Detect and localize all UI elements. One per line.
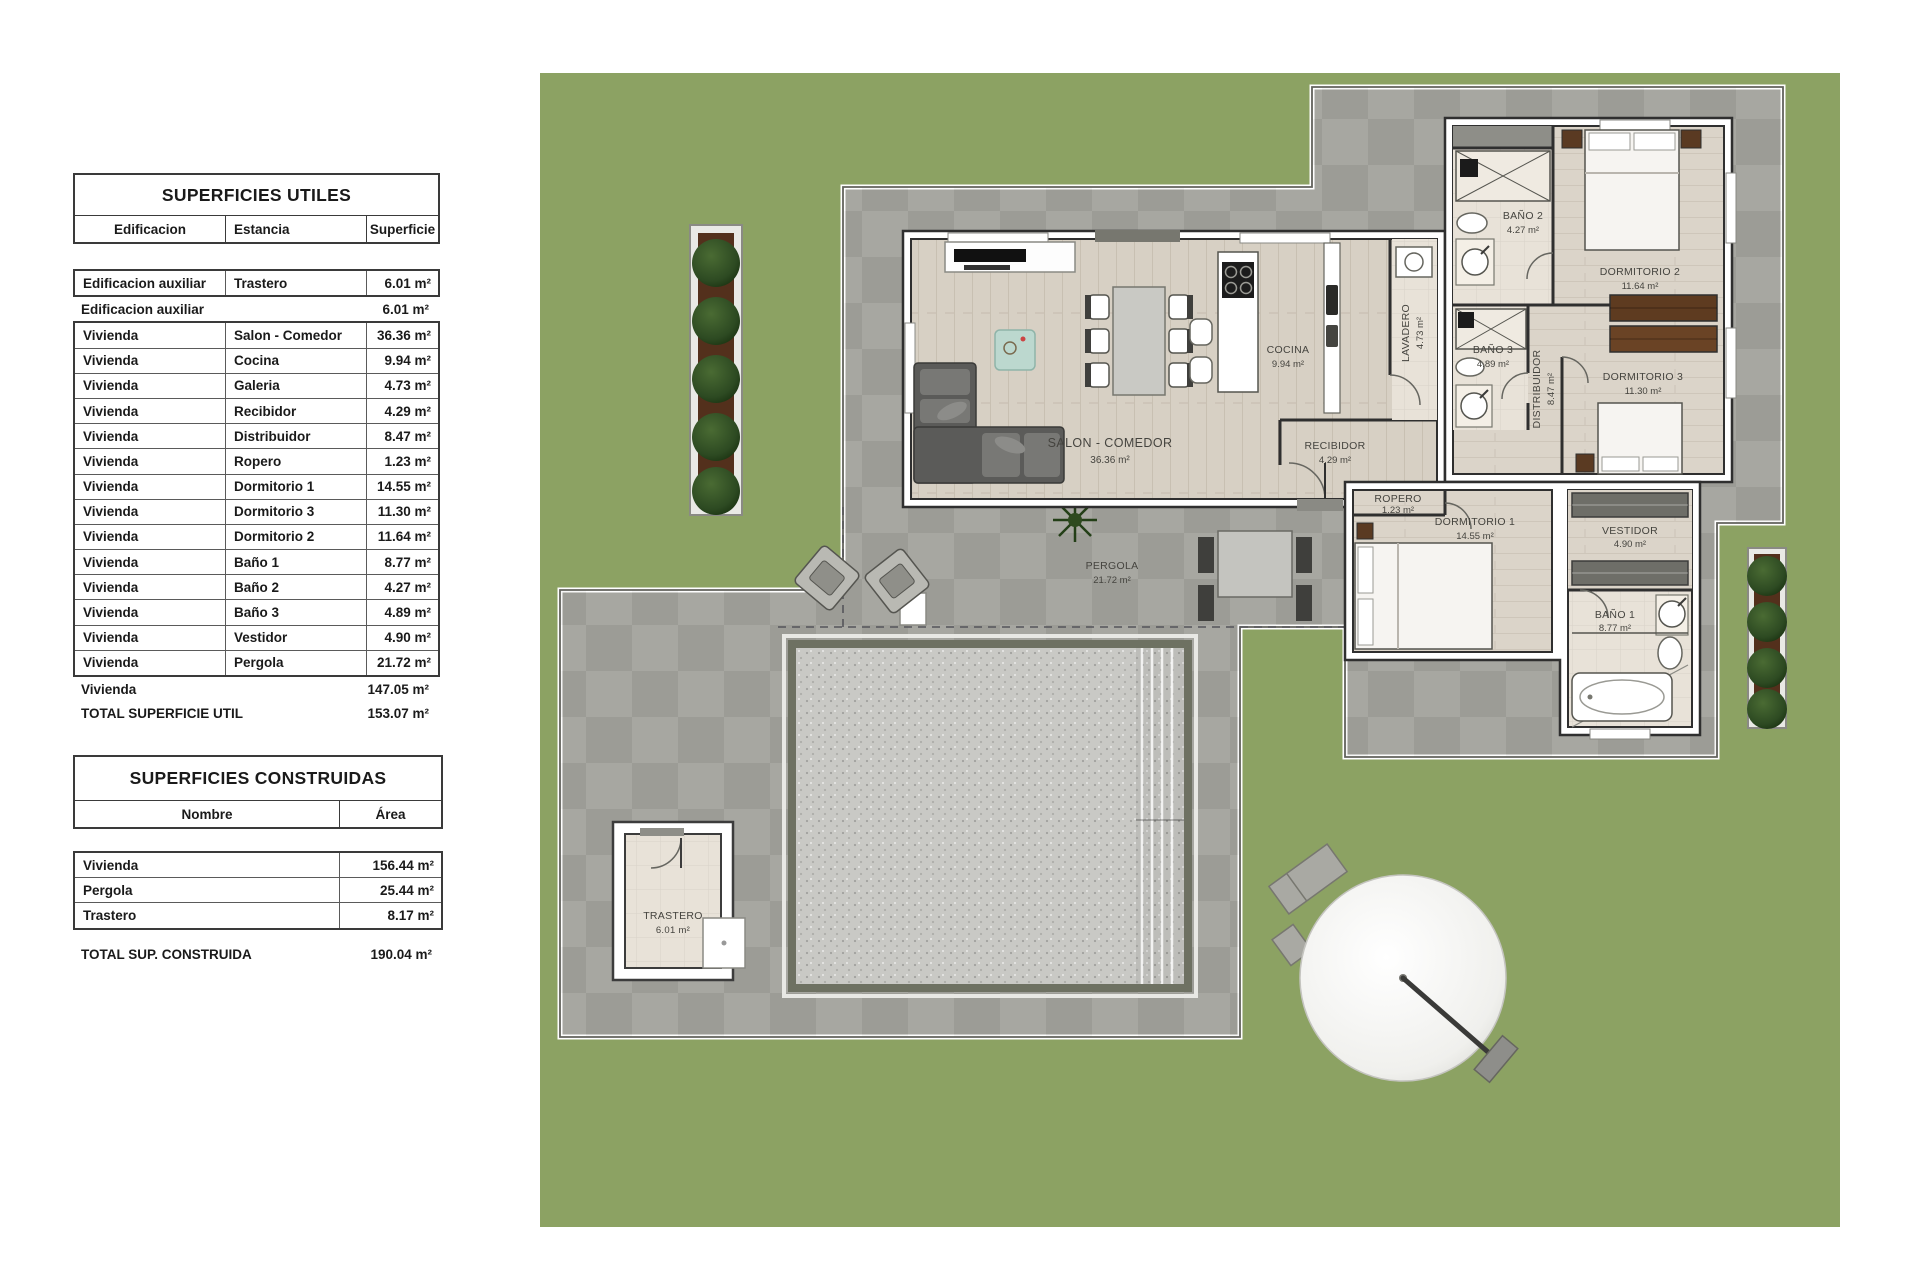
cell-superficie: 6.01 m²: [364, 297, 436, 321]
cell-nombre: Trastero: [75, 903, 339, 927]
col-header-estancia: Estancia: [225, 216, 366, 242]
table-subtotal-row: Edificacion auxiliar 6.01 m²: [73, 297, 440, 321]
table-row: ViviendaBaño 24.27 m²: [75, 574, 438, 599]
total-value: 190.04 m²: [337, 943, 439, 967]
dining-table: [1085, 287, 1193, 395]
window: [1590, 729, 1650, 739]
svg-text:BAÑO 1: BAÑO 1: [1595, 608, 1635, 621]
table-row: ViviendaDormitorio 311.30 m²: [75, 499, 438, 524]
cell-estancia: Distribuidor: [225, 424, 366, 448]
svg-text:TRASTERO: TRASTERO: [643, 910, 703, 922]
svg-text:4.90 m²: 4.90 m²: [1614, 539, 1646, 550]
shower-head-icon: [1460, 159, 1478, 177]
col-header-area: Área: [339, 801, 441, 827]
col-header-superficie: Superficie: [366, 216, 438, 242]
superficies-construidas-table: SUPERFICIES CONSTRUIDAS Nombre Área Vivi…: [73, 755, 443, 967]
kitchen-counter: [1324, 243, 1340, 413]
superficies-utiles-table: SUPERFICIES UTILES Edificacion Estancia …: [73, 173, 440, 725]
cell-edificacion: Vivienda: [75, 525, 225, 549]
cell-estancia: Trastero: [225, 271, 366, 295]
cell-edificacion: Vivienda: [75, 424, 225, 448]
cell-estancia: Baño 3: [225, 600, 366, 624]
nightstand: [1562, 130, 1582, 148]
cell-estancia: Baño 2: [225, 575, 366, 599]
cell-superficie: 36.36 m²: [366, 323, 438, 347]
cell-estancia: Pergola: [225, 651, 366, 675]
cell-edificacion: Vivienda: [75, 323, 225, 347]
svg-text:DORMITORIO 3: DORMITORIO 3: [1603, 371, 1683, 383]
planter-left: [690, 225, 742, 515]
cell-estancia: Vestidor: [225, 626, 366, 650]
cell-edificacion: Vivienda: [75, 651, 225, 675]
cell-estancia: Dormitorio 1: [225, 475, 366, 499]
table-total-row: TOTAL SUP. CONSTRUIDA 190.04 m²: [73, 943, 443, 967]
svg-text:LAVADERO: LAVADERO: [1400, 304, 1412, 362]
table-row: Pergola25.44 m²: [75, 877, 441, 902]
cell-edificacion: Vivienda: [75, 349, 225, 373]
nightstand: [1576, 454, 1594, 472]
table-row: ViviendaBaño 18.77 m²: [75, 549, 438, 574]
tree-icon: [1747, 689, 1787, 729]
nightstand: [1357, 523, 1373, 539]
tree-icon: [692, 355, 740, 403]
cell-superficie: 21.72 m²: [366, 651, 438, 675]
cell-edificacion: Vivienda: [75, 475, 225, 499]
tree-icon: [692, 413, 740, 461]
table-row: ViviendaRecibidor4.29 m²: [75, 398, 438, 423]
tree-icon: [692, 297, 740, 345]
cell-superficie: 11.30 m²: [366, 500, 438, 524]
utiles-title: SUPERFICIES UTILES: [75, 175, 438, 216]
cell-superficie: 6.01 m²: [366, 271, 438, 295]
tv-unit: [945, 242, 1075, 272]
entry-mat: [1297, 499, 1343, 511]
trastero-building: TRASTERO 6.01 m²: [613, 822, 745, 980]
cell-edificacion: Vivienda: [75, 626, 225, 650]
total-label: TOTAL SUPERFICIE UTIL: [73, 701, 364, 725]
window: [1240, 233, 1330, 243]
cell-edificacion: Vivienda: [75, 399, 225, 423]
washbasin-icon: [1659, 601, 1685, 627]
cell-edificacion: Vivienda: [75, 600, 225, 624]
svg-text:36.36 m²: 36.36 m²: [1090, 455, 1130, 466]
svg-text:DISTRIBUIDOR: DISTRIBUIDOR: [1531, 349, 1543, 428]
washbasin-icon: [1462, 249, 1488, 275]
cell-estancia: Salon - Comedor: [225, 323, 366, 347]
svg-text:ROPERO: ROPERO: [1374, 493, 1421, 505]
nightstand: [1681, 130, 1701, 148]
site-plan: TRASTERO 6.01 m²: [540, 73, 1840, 1227]
svg-text:21.72 m²: 21.72 m²: [1093, 575, 1131, 586]
svg-text:SALON - COMEDOR: SALON - COMEDOR: [1048, 436, 1173, 450]
window: [1726, 173, 1736, 243]
window: [1726, 328, 1736, 398]
cell-edificacion: Vivienda: [75, 550, 225, 574]
living-block: [903, 230, 1445, 511]
table-row: ViviendaBaño 34.89 m²: [75, 599, 438, 624]
cell-superficie: 14.55 m²: [366, 475, 438, 499]
svg-text:DORMITORIO 2: DORMITORIO 2: [1600, 266, 1680, 278]
play-rug: [995, 330, 1035, 370]
utiles-header: SUPERFICIES UTILES Edificacion Estancia …: [73, 173, 440, 244]
table-row: ViviendaCocina9.94 m²: [75, 348, 438, 373]
table-total-row: TOTAL SUPERFICIE UTIL 153.07 m²: [73, 701, 440, 725]
construidas-group: Vivienda156.44 m² Pergola25.44 m² Traste…: [73, 851, 443, 930]
table-row: ViviendaDormitorio 211.64 m²: [75, 524, 438, 549]
col-header-edificacion: Edificacion: [75, 222, 225, 237]
cell-superficie: 4.89 m²: [366, 600, 438, 624]
svg-text:VESTIDOR: VESTIDOR: [1602, 525, 1658, 537]
svg-text:COCINA: COCINA: [1267, 344, 1310, 356]
cell-superficie: 4.90 m²: [366, 626, 438, 650]
cell-superficie: 4.73 m²: [366, 374, 438, 398]
toilet-icon: [1658, 637, 1682, 669]
svg-text:4.89 m²: 4.89 m²: [1477, 359, 1509, 370]
svg-text:DORMITORIO 1: DORMITORIO 1: [1435, 516, 1515, 528]
construidas-title: SUPERFICIES CONSTRUIDAS: [75, 757, 441, 801]
cell-edificacion: Vivienda: [75, 374, 225, 398]
cell-nombre: Pergola: [75, 878, 339, 902]
cell-superficie: 8.77 m²: [366, 550, 438, 574]
cell-superficie: 147.05 m²: [364, 677, 436, 701]
cell-estancia: Recibidor: [225, 399, 366, 423]
table-row: ViviendaPergola21.72 m²: [75, 650, 438, 675]
svg-text:4.27 m²: 4.27 m²: [1507, 225, 1539, 236]
sink-icon: [1326, 285, 1338, 315]
svg-text:BAÑO 3: BAÑO 3: [1473, 343, 1513, 356]
svg-text:4.73 m²: 4.73 m²: [1415, 317, 1426, 349]
tree-icon: [692, 467, 740, 515]
table-row: ViviendaRopero1.23 m²: [75, 448, 438, 473]
cell-superficie: 11.64 m²: [366, 525, 438, 549]
cell-edificacion: Vivienda: [73, 677, 223, 701]
bedroom-wing: [1445, 118, 1736, 482]
floor-plan-sheet: SUPERFICIES UTILES Edificacion Estancia …: [0, 0, 1920, 1280]
utiles-group-auxiliar: Edificacion auxiliar Trastero 6.01 m²: [73, 269, 440, 297]
shower-head-icon: [1458, 312, 1474, 328]
svg-text:11.30 m²: 11.30 m²: [1625, 386, 1662, 397]
cell-superficie: 1.23 m²: [366, 449, 438, 473]
cell-edificacion: Edificacion auxiliar: [75, 271, 225, 295]
cell-area: 8.17 m²: [339, 903, 441, 927]
table-row: ViviendaSalon - Comedor36.36 m²: [75, 323, 438, 347]
svg-text:BAÑO 2: BAÑO 2: [1503, 209, 1543, 222]
bathtub-icon: [1572, 673, 1672, 721]
cell-edificacion: Edificacion auxiliar: [73, 297, 223, 321]
table-row: ViviendaDistribuidor8.47 m²: [75, 423, 438, 448]
cell-estancia: Baño 1: [225, 550, 366, 574]
svg-text:RECIBIDOR: RECIBIDOR: [1304, 440, 1365, 452]
window: [1600, 120, 1670, 130]
utiles-group-vivienda: ViviendaSalon - Comedor36.36 m² Vivienda…: [73, 321, 440, 677]
svg-text:4.29 m²: 4.29 m²: [1319, 455, 1351, 466]
cell-estancia: Galeria: [225, 374, 366, 398]
cell-edificacion: Vivienda: [75, 449, 225, 473]
svg-text:8.77 m²: 8.77 m²: [1599, 623, 1631, 634]
total-value: 153.07 m²: [364, 701, 436, 725]
table-row: ViviendaDormitorio 114.55 m²: [75, 474, 438, 499]
svg-text:11.64 m²: 11.64 m²: [1622, 281, 1659, 292]
table-row: Trastero8.17 m²: [75, 902, 441, 927]
svg-text:9.94 m²: 9.94 m²: [1272, 359, 1304, 370]
cell-superficie: 4.29 m²: [366, 399, 438, 423]
cell-superficie: 9.94 m²: [366, 349, 438, 373]
svg-text:14.55 m²: 14.55 m²: [1456, 531, 1494, 542]
cell-edificacion: Vivienda: [75, 500, 225, 524]
svg-text:6.01 m²: 6.01 m²: [656, 925, 690, 936]
cell-estancia: Cocina: [225, 349, 366, 373]
washer-icon: [1396, 247, 1432, 277]
svg-text:PERGOLA: PERGOLA: [1086, 560, 1139, 572]
cell-edificacion: Vivienda: [75, 575, 225, 599]
tree-icon: [1747, 602, 1787, 642]
toilet-icon: [1457, 213, 1487, 233]
table-subtotal-row: Vivienda 147.05 m²: [73, 677, 440, 701]
tree-icon: [692, 239, 740, 287]
cell-estancia: Ropero: [225, 449, 366, 473]
col-header-nombre: Nombre: [75, 807, 339, 822]
pool-steps: [1136, 648, 1184, 984]
washbasin-icon: [1461, 393, 1487, 419]
svg-text:8.47 m²: 8.47 m²: [1546, 373, 1557, 405]
construidas-header: SUPERFICIES CONSTRUIDAS Nombre Área: [73, 755, 443, 829]
cell-superficie: 4.27 m²: [366, 575, 438, 599]
tree-icon: [1747, 648, 1787, 688]
planter-right: [1747, 548, 1787, 729]
tree-icon: [1747, 556, 1787, 596]
table-row: ViviendaVestidor4.90 m²: [75, 625, 438, 650]
cell-estancia: Dormitorio 2: [225, 525, 366, 549]
table-row: ViviendaGaleria4.73 m²: [75, 373, 438, 398]
svg-text:1.23 m²: 1.23 m²: [1382, 505, 1414, 516]
total-label: TOTAL SUP. CONSTRUIDA: [73, 943, 337, 967]
cell-superficie: 8.47 m²: [366, 424, 438, 448]
table-row: Edificacion auxiliar Trastero 6.01 m²: [75, 271, 438, 295]
cell-estancia: Dormitorio 3: [225, 500, 366, 524]
pool: [784, 636, 1196, 996]
cell-area: 156.44 m²: [339, 853, 441, 877]
cell-area: 25.44 m²: [339, 878, 441, 902]
cell-nombre: Vivienda: [75, 853, 339, 877]
table-row: Vivienda156.44 m²: [75, 853, 441, 877]
